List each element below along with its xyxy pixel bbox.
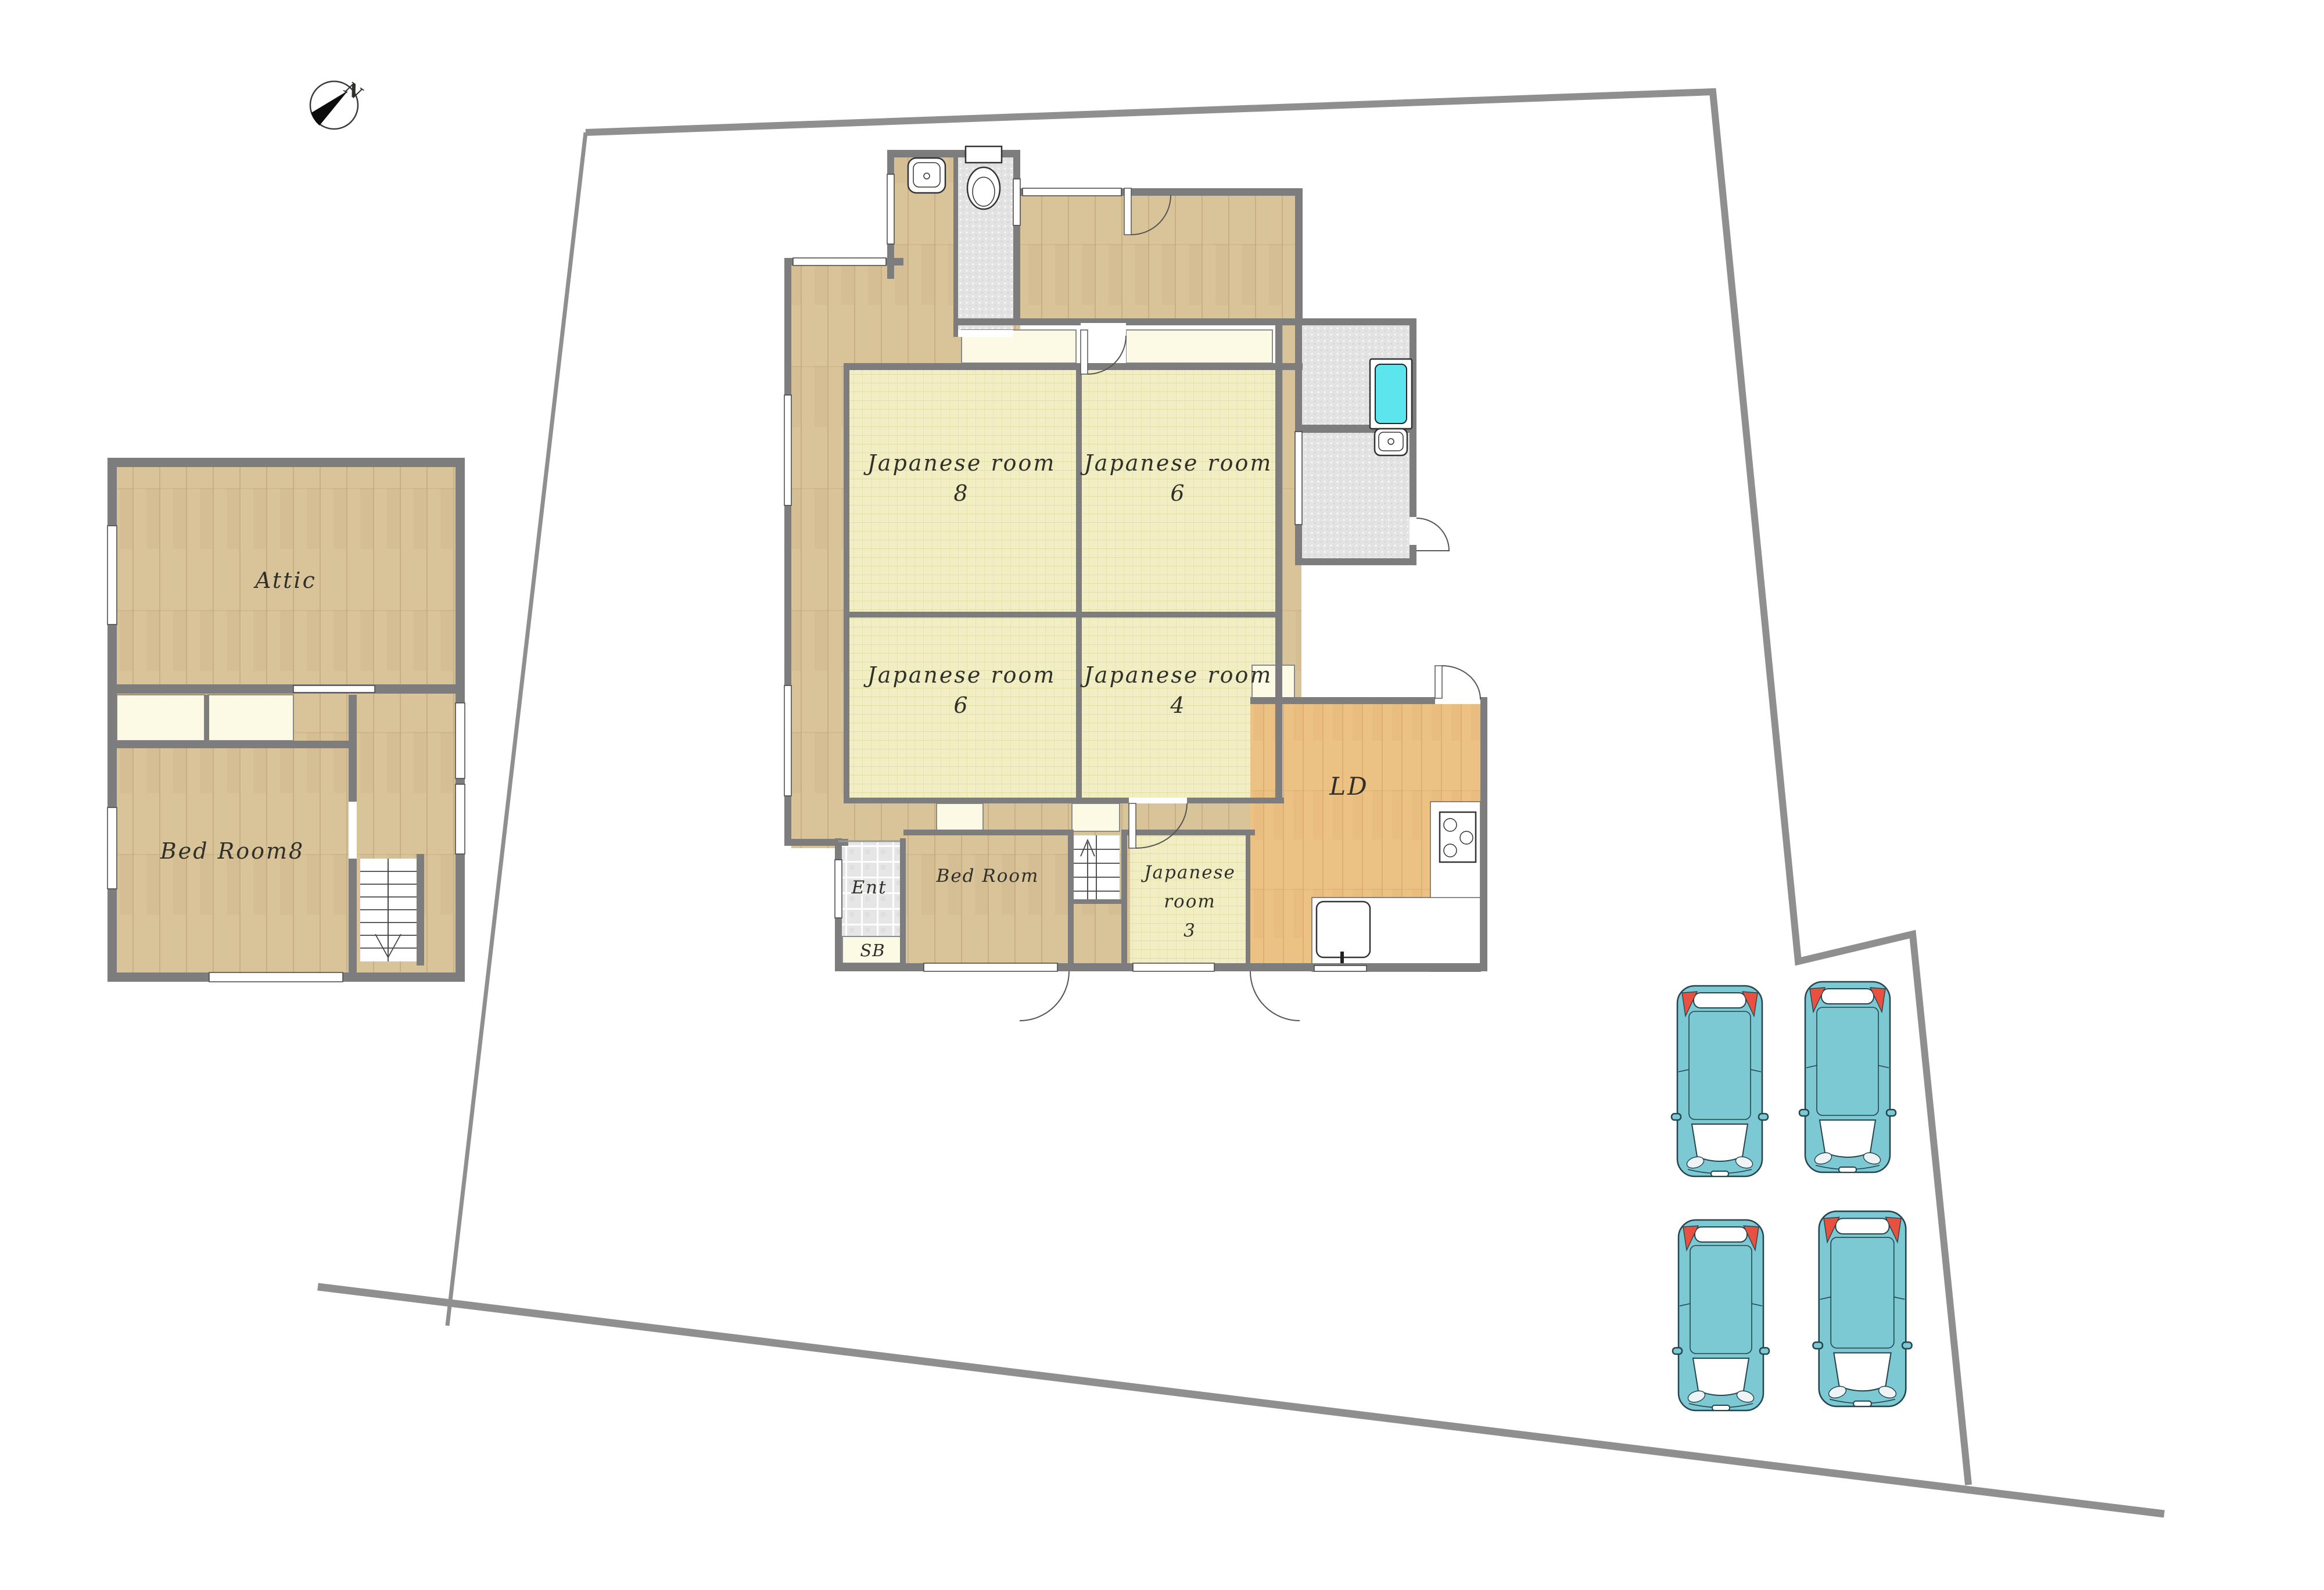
stove-icon — [1440, 812, 1476, 862]
toilet-icon — [966, 146, 1002, 209]
japanese-room-8-label: Japanese room — [863, 450, 1056, 476]
entrance-label: Ent — [851, 877, 887, 898]
japanese-room-6-upper-label: Japanese room — [1080, 450, 1273, 476]
japanese-room-4-label: Japanese room — [1080, 662, 1273, 688]
car-icon — [1673, 1220, 1769, 1410]
japanese-room-3-label-1: Japanese — [1141, 862, 1236, 883]
first-floor-plan: Japanese room 8 Japanese room 6 Japanese… — [784, 146, 1487, 1021]
japanese-room-8-number: 8 — [953, 480, 969, 506]
bed-room-label: Bed Room — [936, 866, 1039, 886]
car-icon — [1672, 986, 1768, 1176]
bed-room-8-label: Bed Room8 — [160, 838, 304, 864]
japanese-room-3-label-3: 3 — [1183, 920, 1196, 941]
car-icon — [1813, 1211, 1912, 1406]
japanese-room-6-upper-number: 6 — [1170, 480, 1186, 506]
kitchen-sink-icon — [1317, 902, 1370, 963]
floorplan-graphics: N — [0, 0, 2324, 1590]
car-icon — [1799, 982, 1896, 1172]
washroom-sink-icon — [1375, 429, 1407, 455]
japanese-room-4-number: 4 — [1170, 692, 1186, 718]
living-dining-label: LD — [1329, 772, 1369, 801]
parking-cars — [1672, 982, 1912, 1410]
sink-icon — [908, 158, 945, 193]
japanese-room-6-lower-number: 6 — [953, 692, 969, 718]
shoe-box-label: SB — [860, 941, 885, 960]
japanese-room-6-lower-label: Japanese room — [863, 662, 1056, 688]
compass-icon: N — [310, 78, 366, 129]
floorplan-canvas: N — [0, 0, 2324, 1590]
bathtub-icon — [1370, 359, 1412, 429]
japanese-room-3-label-2: room — [1164, 891, 1216, 912]
second-floor-plan: Attic Bed Room8 — [107, 458, 465, 982]
attic-label: Attic — [253, 568, 317, 593]
